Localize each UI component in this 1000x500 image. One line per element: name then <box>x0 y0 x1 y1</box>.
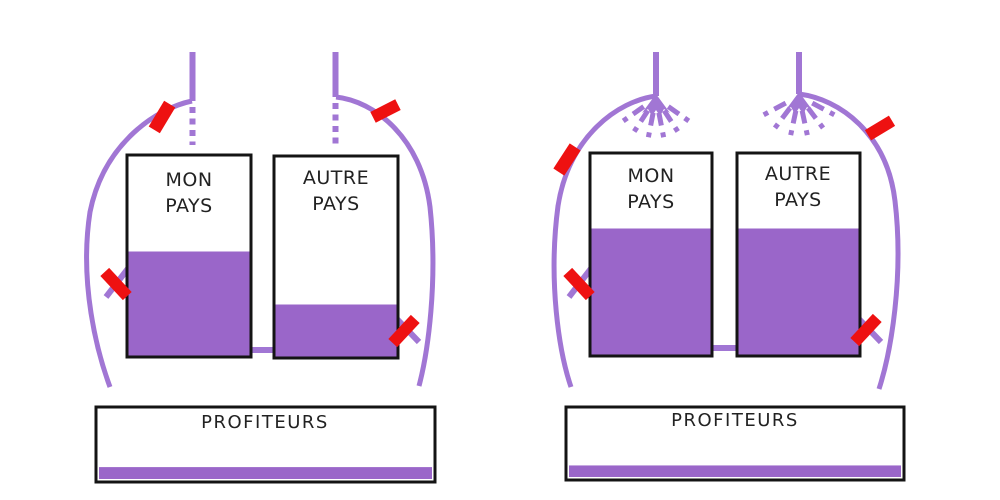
spray-ray <box>790 111 796 137</box>
diagram-stage: MON PAYS AUTRE PAYS PROFITEURS MON PAYS … <box>0 0 1000 500</box>
labels-layer: MON PAYS AUTRE PAYS PROFITEURS MON PAYS … <box>165 163 831 433</box>
spray-ray <box>774 108 790 130</box>
cut-mark-red <box>553 143 580 175</box>
tank-fill <box>592 229 711 355</box>
tank-label-line2: PAYS <box>774 189 821 211</box>
spray-ray <box>659 113 664 140</box>
connector-pipe <box>712 345 738 351</box>
reservoir-fill <box>569 465 901 477</box>
cut-mark-red <box>865 116 895 141</box>
tank-fill <box>739 229 859 355</box>
tank-label-line1: AUTRE <box>303 167 369 189</box>
spray-ray <box>802 111 808 137</box>
tank-label-line2: PAYS <box>165 195 212 217</box>
tank-fill <box>276 305 397 357</box>
tank-label-line1: MON <box>627 165 674 187</box>
diagram-canvas: MON PAYS AUTRE PAYS PROFITEURS MON PAYS … <box>0 0 1000 500</box>
tank-label-line1: MON <box>165 169 212 191</box>
tank-label-line2: PAYS <box>627 191 674 213</box>
spray-rays <box>762 103 836 137</box>
reservoir-label: PROFITEURS <box>671 410 799 431</box>
spray-ray <box>762 103 786 116</box>
tank-label-line1: AUTRE <box>765 163 831 185</box>
spray-rays <box>622 107 691 140</box>
connector-pipe <box>251 347 276 353</box>
spray-ray <box>808 108 824 130</box>
spray-ray <box>648 113 653 140</box>
tank-label-line2: PAYS <box>312 193 359 215</box>
reservoir-fill <box>99 467 432 479</box>
reservoir-label: PROFITEURS <box>201 412 329 433</box>
tank-fill <box>129 252 250 356</box>
